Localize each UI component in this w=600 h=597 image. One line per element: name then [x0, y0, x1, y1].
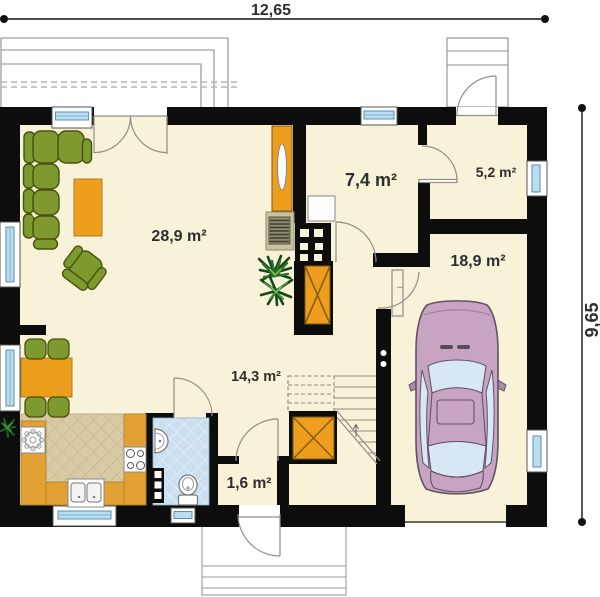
- svg-text:14,3 m²: 14,3 m²: [231, 369, 281, 385]
- svg-text:9,65: 9,65: [582, 302, 600, 337]
- svg-text:28,9 m²: 28,9 m²: [151, 228, 206, 245]
- svg-text:5,2 m²: 5,2 m²: [476, 164, 517, 180]
- svg-text:12,65: 12,65: [251, 2, 291, 19]
- svg-text:1,6 m²: 1,6 m²: [227, 475, 272, 492]
- svg-text:7,4 m²: 7,4 m²: [345, 170, 397, 190]
- svg-text:18,9 m²: 18,9 m²: [450, 253, 505, 270]
